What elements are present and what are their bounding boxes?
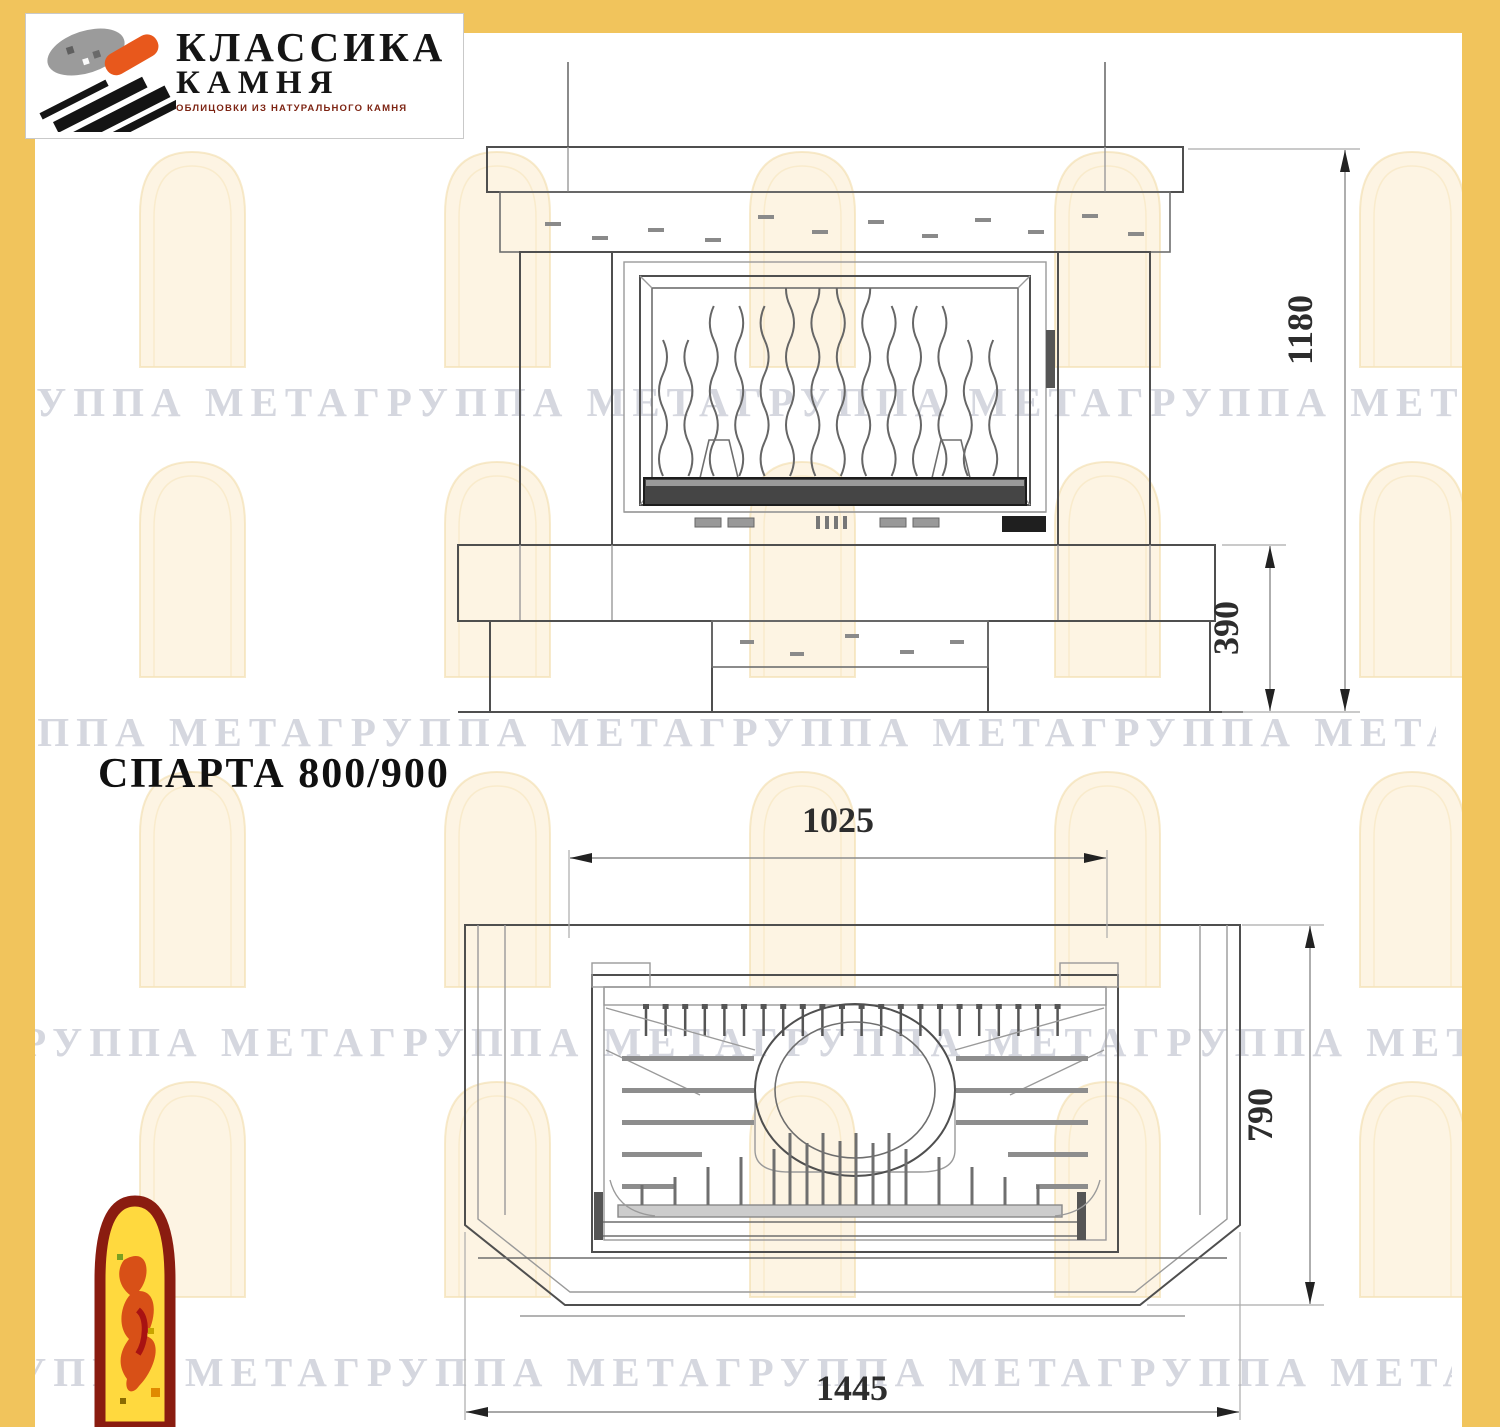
plan-grate-pins xyxy=(641,1133,1040,1205)
vent-ticks xyxy=(816,516,847,529)
vent xyxy=(880,518,906,527)
door-handle xyxy=(1002,516,1046,532)
front-view-drawing: 1180 390 xyxy=(458,62,1360,712)
plan-outer-contour xyxy=(465,925,1240,1305)
plan-comb-teeth xyxy=(643,1004,1061,1036)
company-name-line1: КЛАССИКА xyxy=(176,28,446,67)
flames xyxy=(659,272,997,476)
meta-arch-logo-icon xyxy=(93,1192,177,1427)
vent xyxy=(728,518,754,527)
base-plinth xyxy=(458,621,1243,712)
dim-label-width: 1025 xyxy=(802,800,874,840)
technical-drawing: 1180 390 xyxy=(0,0,1500,1427)
dim-label-depth: 790 xyxy=(1240,1088,1280,1142)
front-dimensions: 1180 390 xyxy=(1188,149,1360,712)
chimney-lines xyxy=(568,62,1105,147)
plan-view-drawing: 1025 790 1445 xyxy=(465,800,1324,1420)
product-title: СПАРТА 800/900 xyxy=(98,750,450,798)
right-brick-pier xyxy=(1058,252,1150,545)
plan-dimensions: 1025 790 1445 xyxy=(465,800,1324,1420)
company-logo-text: КЛАССИКА КАМНЯ ОБЛИЦОВКИ ИЗ НАТУРАЛЬНОГО… xyxy=(176,14,446,114)
plan-door-front xyxy=(596,1222,1084,1236)
mantel-shelf xyxy=(487,147,1183,192)
left-brick-pier xyxy=(520,252,612,545)
company-subtitle: ОБЛИЦОВКИ ИЗ НАТУРАЛЬНОГО КАМНЯ xyxy=(176,103,446,114)
vent xyxy=(695,518,721,527)
page: ГРУППА МЕТАГРУППА МЕТАГРУППА МЕТАГРУППА … xyxy=(0,0,1500,1427)
andiron-left xyxy=(700,440,738,478)
company-logo-icon xyxy=(26,14,176,132)
bench-slab xyxy=(458,545,1215,621)
dim-label-front-width: 1445 xyxy=(816,1368,888,1408)
company-name-line2: КАМНЯ xyxy=(176,67,446,100)
soldier-brick-band xyxy=(500,192,1170,252)
door-hinge xyxy=(1046,330,1055,388)
company-logo: КЛАССИКА КАМНЯ ОБЛИЦОВКИ ИЗ НАТУРАЛЬНОГО… xyxy=(25,13,464,139)
plan-firebox-insert xyxy=(592,963,1118,1252)
dim-label-base-height: 390 xyxy=(1206,601,1246,655)
plan-grate-bar xyxy=(618,1205,1062,1217)
vent xyxy=(913,518,939,527)
dim-label-height: 1180 xyxy=(1280,295,1320,365)
firebox-insert xyxy=(612,252,1058,545)
